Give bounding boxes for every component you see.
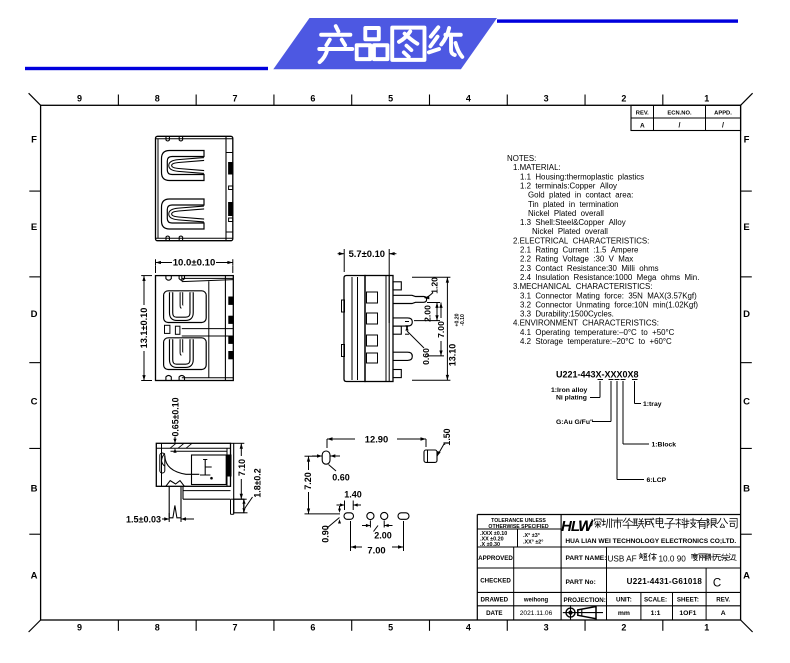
svg-text:B: B [743, 484, 750, 495]
svg-text:NOTES:: NOTES: [507, 154, 536, 163]
svg-text:8: 8 [155, 94, 160, 104]
svg-text:APPD.: APPD. [714, 110, 732, 116]
svg-text:7: 7 [233, 623, 238, 633]
svg-text:1:Iron alloy: 1:Iron alloy [551, 387, 587, 394]
svg-text:4.ENVIRONMENT CHARACTERISTICS: 4.ENVIRONMENT CHARACTERISTICS: [513, 319, 659, 328]
svg-text:5: 5 [388, 623, 393, 633]
svg-text:D: D [31, 309, 38, 320]
svg-text:HUA LIAN WEI TECHNOLOGY EL: HUA LIAN WEI TECHNOLOGY ELECTRONICS CO;L… [565, 538, 736, 545]
svg-text:1.1 Housing:thermoplastic pl: 1.1 Housing:thermoplastic plastics [520, 172, 644, 181]
svg-text:0.90: 0.90 [321, 525, 331, 543]
svg-text:2.3 Contact Resistance:30 M: 2.3 Contact Resistance:30 Milli ohms [520, 264, 659, 273]
svg-text:A: A [640, 122, 645, 129]
svg-text:TOLERANCE UNLESS: TOLERANCE UNLESS [491, 518, 546, 524]
svg-text:5: 5 [388, 94, 393, 104]
svg-text:0.60: 0.60 [332, 473, 350, 483]
svg-text:C: C [743, 396, 750, 407]
svg-text:2.4 Insulation Resistance:10: 2.4 Insulation Resistance:1000 Mega ohms… [520, 273, 699, 282]
svg-text:REV.: REV. [716, 597, 730, 604]
svg-text:PART No:: PART No: [566, 579, 596, 586]
svg-text:4.2 Storage temperature:–20°: 4.2 Storage temperature:–20°C to +60°C [520, 337, 672, 346]
svg-text:U221-4431-G61018: U221-4431-G61018 [627, 577, 703, 586]
svg-text:9: 9 [77, 94, 82, 104]
svg-text:A: A [721, 610, 726, 617]
svg-text:2.2 Rating Voltage :30 V: 2.2 Rating Voltage :30 V Max [520, 255, 633, 264]
svg-text:4: 4 [466, 94, 471, 104]
svg-text:SHEET:: SHEET: [677, 597, 699, 604]
svg-text:1.2 terminals:Copper Alloy: 1.2 terminals:Copper Alloy [520, 181, 617, 190]
svg-text:1.40: 1.40 [344, 490, 362, 500]
svg-text:2021.11.06: 2021.11.06 [520, 610, 553, 617]
svg-text:5.7±0.10: 5.7±0.10 [349, 248, 385, 259]
svg-text:7.10: 7.10 [237, 459, 247, 476]
svg-text:A: A [31, 571, 38, 582]
svg-text:/: / [722, 123, 724, 130]
svg-text:3: 3 [544, 623, 549, 633]
svg-text:7.20: 7.20 [303, 472, 313, 490]
svg-text:Tin plated in termination: Tin plated in termination [528, 200, 619, 209]
svg-text:B: B [31, 484, 38, 495]
svg-text:2.00: 2.00 [374, 531, 392, 541]
svg-text:3.1 Connector Mating force:: 3.1 Connector Mating force: 35N MAX(3.57… [520, 291, 697, 300]
svg-text:1:1: 1:1 [651, 610, 661, 617]
svg-text:3.MECHANICAL CHARACTERISTICS:: 3.MECHANICAL CHARACTERISTICS: [513, 282, 652, 291]
svg-text:4: 4 [466, 623, 471, 633]
svg-text:1.8±0.2: 1.8±0.2 [253, 468, 263, 497]
svg-text:.X° ±3°: .X° ±3° [523, 533, 540, 539]
svg-text:-0.10: -0.10 [460, 314, 466, 326]
svg-text:1.20: 1.20 [429, 277, 439, 294]
svg-text:12.90: 12.90 [365, 433, 388, 444]
svg-text:PART NAME:: PART NAME: [566, 555, 607, 562]
svg-text:/: / [679, 123, 681, 130]
svg-text:1.MATERIAL:: 1.MATERIAL: [513, 163, 561, 172]
svg-text:1OF1: 1OF1 [679, 610, 696, 617]
svg-text:13.1±0.10: 13.1±0.10 [139, 308, 149, 349]
svg-text:1.5±0.03: 1.5±0.03 [126, 515, 161, 525]
svg-text:4.1 Operating temperature:–0: 4.1 Operating temperature:–0°C to +50°C [520, 328, 675, 337]
svg-text:2: 2 [621, 623, 626, 633]
svg-text:weihong: weihong [523, 598, 549, 604]
svg-text:OTHERWISE SPECIFIED: OTHERWISE SPECIFIED [488, 524, 548, 530]
svg-text:Nickel Plated overall: Nickel Plated overall [532, 227, 608, 236]
svg-text:1: 1 [704, 623, 709, 633]
svg-text:E: E [743, 222, 749, 233]
svg-text:0.60: 0.60 [421, 348, 431, 365]
svg-text:E: E [31, 222, 37, 233]
svg-text:2.1 Rating Current :1.5 Am: 2.1 Rating Current :1.5 Ampere [520, 246, 639, 255]
svg-text:F: F [744, 135, 750, 146]
svg-text:C: C [31, 396, 38, 407]
svg-text:ECN.NO.: ECN.NO. [667, 110, 692, 116]
svg-text:.X ±0.30: .X ±0.30 [480, 542, 500, 548]
svg-text:PROJECTION:: PROJECTION: [564, 597, 606, 604]
svg-text:1.50: 1.50 [442, 428, 452, 445]
svg-text:6:LCP: 6:LCP [647, 477, 667, 484]
svg-text:C: C [713, 578, 721, 590]
svg-text:SCALE:: SCALE: [644, 597, 667, 604]
svg-text:U221-443X-XXX0X8: U221-443X-XXX0X8 [556, 370, 639, 380]
svg-text:Ni plating: Ni plating [556, 395, 587, 402]
svg-text:1.3 Shell:Steel&Copper Alloy: 1.3 Shell:Steel&Copper Alloy [520, 218, 626, 227]
svg-text:REV.: REV. [636, 110, 649, 116]
svg-text:10.0 90: 10.0 90 [659, 554, 687, 563]
svg-text:.XX° ±2°: .XX° ±2° [523, 540, 543, 546]
svg-text:F: F [31, 135, 37, 146]
svg-text:9: 9 [77, 623, 82, 633]
svg-text:DATE: DATE [486, 610, 502, 617]
svg-text:CHECKED: CHECKED [480, 578, 511, 585]
svg-text:2.00: 2.00 [423, 305, 433, 322]
svg-text:A: A [743, 571, 750, 582]
svg-text:Gold plated in contact are: Gold plated in contact area: [528, 191, 633, 200]
svg-text:7.00: 7.00 [367, 545, 385, 556]
svg-text:Nickel Plated overall: Nickel Plated overall [528, 209, 604, 218]
svg-text:10.0±0.10: 10.0±0.10 [173, 258, 216, 269]
svg-text:D: D [743, 309, 750, 320]
svg-text:7.00: 7.00 [436, 321, 446, 338]
svg-text:mm: mm [618, 610, 630, 617]
svg-text:8: 8 [155, 623, 160, 633]
svg-text:7: 7 [233, 94, 238, 104]
svg-text:3: 3 [544, 94, 549, 104]
svg-text:G:Au G/Fu": G:Au G/Fu" [556, 419, 593, 426]
svg-text:DRAWED: DRAWED [481, 597, 509, 604]
svg-text:USB AF: USB AF [608, 554, 637, 563]
svg-text:2: 2 [621, 94, 626, 104]
svg-text:3.3 Durability:1500Cycles.: 3.3 Durability:1500Cycles. [520, 310, 614, 319]
svg-text:13.10: 13.10 [448, 344, 458, 367]
svg-text:6: 6 [310, 623, 315, 633]
svg-text:0.65±0.10: 0.65±0.10 [171, 397, 181, 436]
svg-text:UNIT:: UNIT: [616, 597, 632, 604]
svg-text:APPROVED: APPROVED [478, 555, 513, 562]
svg-text:1: 1 [704, 94, 709, 104]
svg-text:1:tray: 1:tray [643, 401, 662, 408]
svg-text:2.ELECTRICAL CHARACTERISTICS:: 2.ELECTRICAL CHARACTERISTICS: [513, 236, 649, 245]
svg-text:6: 6 [310, 94, 315, 104]
svg-text:1:Block: 1:Block [652, 442, 677, 449]
svg-text:3.2 Connector Unmating forc: 3.2 Connector Unmating force:10N min(1.0… [520, 300, 698, 309]
